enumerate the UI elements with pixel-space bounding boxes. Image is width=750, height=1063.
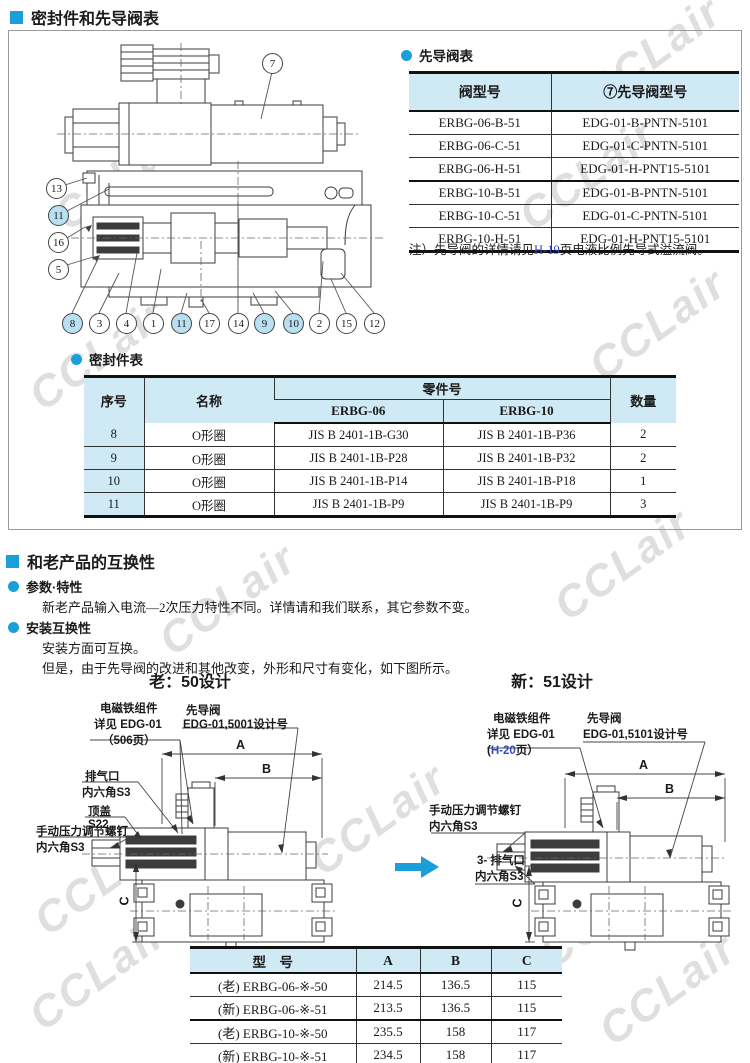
cell-qty: 3 — [610, 493, 676, 517]
cell-name: O形圈 — [144, 447, 274, 470]
table-row: ERBG-10-B-51EDG-01-B-PNTN-5101 — [409, 181, 739, 205]
cell-model: (老) ERBG-06-※-50 — [190, 973, 356, 997]
table-header-row: 型 号 A B C — [190, 948, 562, 974]
col-dim-c: C — [491, 948, 562, 974]
cell-erbg10: JIS B 2401-1B-P36 — [443, 423, 610, 447]
col-seq: 序号 — [84, 377, 144, 424]
exhaust-label-2: 内六角S3 — [475, 868, 524, 884]
cell-pilot-model: EDG-01-H-PNT15-5101 — [551, 158, 739, 182]
cell-valve-model: ERBG-06-H-51 — [409, 158, 551, 182]
top-panel: 7 13 11 16 5 8 3 4 1 11 17 14 9 10 2 15 … — [8, 30, 742, 530]
bullet-params: 参数·特性 — [8, 577, 82, 596]
cell-a: 235.5 — [356, 1020, 420, 1044]
pilot-label-2: EDG-01,5101设计号 — [583, 726, 688, 742]
cell-qty: 2 — [610, 423, 676, 447]
cell-pilot-model: EDG-01-B-PNTN-5101 — [551, 181, 739, 205]
table-row: ERBG-10-C-51EDG-01-C-PNTN-5101 — [409, 205, 739, 228]
seal-parts-table: 序号 名称 零件号 数量 ERBG-06 ERBG-10 8O形圈JIS B 2… — [84, 375, 676, 518]
callout-16: 16 — [48, 232, 69, 253]
cell-erbg06: JIS B 2401-1B-G30 — [274, 423, 443, 447]
dim-a-label: A — [236, 738, 245, 752]
screw-label-2: 内六角S3 — [36, 839, 85, 855]
cell-c: 115 — [491, 973, 562, 997]
callout-1: 1 — [143, 313, 164, 334]
solenoid-label-1: 电磁铁组件 — [493, 710, 551, 726]
table-header-row: 阀型号 ⑦先导阀型号 — [409, 73, 739, 112]
exhaust-label-2: 内六角S3 — [82, 784, 131, 800]
callout-9: 9 — [254, 313, 275, 334]
cell-model: (老) ERBG-10-※-50 — [190, 1020, 356, 1044]
new-design-title: 新：51设计 — [462, 668, 642, 692]
bullet-dot-icon — [401, 50, 412, 61]
cell-b: 136.5 — [420, 997, 491, 1021]
section-title-text: 密封件和先导阀表 — [31, 5, 159, 29]
dim-a-label: A — [639, 758, 648, 772]
section-square-icon — [10, 11, 23, 24]
callout-10: 10 — [283, 313, 304, 334]
callout-7: 7 — [262, 53, 283, 74]
solenoid-label-1: 电磁铁组件 — [100, 700, 158, 716]
solenoid-label-2: 详见 EDG-01 — [487, 726, 555, 742]
dim-b-label: B — [262, 762, 271, 776]
section-title-text: 和老产品的互换性 — [27, 549, 155, 573]
cell-a: 214.5 — [356, 973, 420, 997]
cell-seq: 10 — [84, 470, 144, 493]
col-name: 名称 — [144, 377, 274, 424]
bullet-mounting: 安装互换性 — [8, 618, 91, 637]
table-row: 11O形圈JIS B 2401-1B-P9JIS B 2401-1B-P93 — [84, 493, 676, 517]
col-part-number: 零件号 — [274, 377, 610, 400]
bullet-title-text: 安装互换性 — [26, 618, 91, 637]
cell-seq: 11 — [84, 493, 144, 517]
seal-table-title: 密封件表 — [71, 349, 143, 369]
note-text: 注）先导阀的详情请见 — [409, 243, 534, 257]
screw-label-1: 手动压力调节螺钉 — [36, 823, 128, 839]
cell-valve-model: ERBG-06-C-51 — [409, 135, 551, 158]
section-square-icon — [6, 555, 19, 568]
valve-assembly-diagram: 7 13 11 16 5 8 3 4 1 11 17 14 9 10 2 15 … — [21, 41, 411, 341]
cell-name: O形圈 — [144, 470, 274, 493]
col-pilot-model: ⑦先导阀型号 — [551, 73, 739, 112]
cell-c: 115 — [491, 997, 562, 1021]
cell-erbg10: JIS B 2401-1B-P32 — [443, 447, 610, 470]
bullet-dot-icon — [8, 622, 19, 633]
table-row: 8O形圈JIS B 2401-1B-G30JIS B 2401-1B-P362 — [84, 423, 676, 447]
cell-name: O形圈 — [144, 423, 274, 447]
callout-5: 5 — [48, 259, 69, 280]
pilot-table-title-text: 先导阀表 — [419, 45, 473, 65]
cell-erbg10: JIS B 2401-1B-P18 — [443, 470, 610, 493]
table-row: (新) ERBG-10-※-51234.5158117 — [190, 1044, 562, 1063]
cell-a: 234.5 — [356, 1044, 420, 1063]
table-header-row: 序号 名称 零件号 数量 — [84, 377, 676, 400]
cell-qty: 1 — [610, 470, 676, 493]
callout-17: 17 — [199, 313, 220, 334]
section-title-compat: 和老产品的互换性 — [6, 549, 155, 573]
table-row: 9O形圈JIS B 2401-1B-P28JIS B 2401-1B-P322 — [84, 447, 676, 470]
col-valve-model: 阀型号 — [409, 73, 551, 112]
valve-section-drawing — [21, 41, 411, 341]
pilot-valve-table: 阀型号 ⑦先导阀型号 ERBG-06-B-51EDG-01-B-PNTN-510… — [409, 71, 739, 253]
cell-seq: 9 — [84, 447, 144, 470]
bullet-dot-icon — [8, 581, 19, 592]
solenoid-label-2: 详见 EDG-01 — [94, 716, 162, 732]
solenoid-label-3: （506页） — [102, 732, 156, 748]
callout-15: 15 — [336, 313, 357, 334]
table-row: ERBG-06-B-51EDG-01-B-PNTN-5101 — [409, 111, 739, 135]
callout-14: 14 — [228, 313, 249, 334]
callout-13: 13 — [46, 178, 67, 199]
pilot-table-note: 注）先导阀的详情请见H-19页电液比例先导式溢流阀。 — [409, 239, 710, 258]
exhaust-label-1: 排气口 — [85, 768, 120, 784]
col-erbg10: ERBG-10 — [443, 400, 610, 424]
cell-valve-model: ERBG-10-B-51 — [409, 181, 551, 205]
bullet-dot-icon — [71, 354, 82, 365]
cell-name: O形圈 — [144, 493, 274, 517]
cell-pilot-model: EDG-01-B-PNTN-5101 — [551, 111, 739, 135]
callout-11: 11 — [48, 205, 69, 226]
screw-label-2: 内六角S3 — [429, 818, 478, 834]
cell-valve-model: ERBG-06-B-51 — [409, 111, 551, 135]
table-row: 10O形圈JIS B 2401-1B-P14JIS B 2401-1B-P181 — [84, 470, 676, 493]
dimension-table: 型 号 A B C (老) ERBG-06-※-50214.5136.5115 … — [190, 946, 562, 1063]
old-design-title: 老：50设计 — [100, 668, 280, 692]
callout-4: 4 — [116, 313, 137, 334]
cell-qty: 2 — [610, 447, 676, 470]
table-row: ERBG-06-H-51EDG-01-H-PNT15-5101 — [409, 158, 739, 182]
col-dim-b: B — [420, 948, 491, 974]
callout-12: 12 — [364, 313, 385, 334]
callout-3: 3 — [89, 313, 110, 334]
new-design-diagram: 电磁铁组件 详见 EDG-01 (H-20页） 先导阀 EDG-01,5101设… — [425, 690, 750, 963]
table-row: (老) ERBG-06-※-50214.5136.5115 — [190, 973, 562, 997]
dim-c-label: C — [118, 896, 132, 905]
callout-8: 8 — [62, 313, 83, 334]
note-text: 页电液比例先导式溢流阀。 — [560, 243, 710, 257]
cell-b: 158 — [420, 1020, 491, 1044]
cell-erbg06: JIS B 2401-1B-P14 — [274, 470, 443, 493]
callout-11b: 11 — [171, 313, 192, 334]
mounting-text-1: 安装方面可互换。 — [42, 638, 146, 657]
cell-c: 117 — [491, 1044, 562, 1063]
table-row: (新) ERBG-06-※-51213.5136.5115 — [190, 997, 562, 1021]
dim-c-label: C — [511, 898, 525, 907]
label-text: 页） — [516, 745, 539, 757]
col-erbg06: ERBG-06 — [274, 400, 443, 424]
cell-pilot-model: EDG-01-C-PNTN-5101 — [551, 135, 739, 158]
exhaust-label-1: 3- 排气口 — [477, 852, 525, 868]
screw-label-1: 手动压力调节螺钉 — [429, 802, 521, 818]
cell-b: 136.5 — [420, 973, 491, 997]
pilot-label-2: EDG-01,5001设计号 — [183, 716, 288, 732]
callout-2: 2 — [309, 313, 330, 334]
cell-erbg06: JIS B 2401-1B-P28 — [274, 447, 443, 470]
dim-b-label: B — [665, 782, 674, 796]
table-row: (老) ERBG-10-※-50235.5158117 — [190, 1020, 562, 1044]
cell-erbg06: JIS B 2401-1B-P9 — [274, 493, 443, 517]
pilot-label-1: 先导阀 — [587, 710, 622, 726]
table-row: ERBG-06-C-51EDG-01-C-PNTN-5101 — [409, 135, 739, 158]
cell-model: (新) ERBG-10-※-51 — [190, 1044, 356, 1063]
section-title-seals-pilot: 密封件和先导阀表 — [10, 5, 159, 29]
cell-b: 158 — [420, 1044, 491, 1063]
col-qty: 数量 — [610, 377, 676, 424]
seal-table-title-text: 密封件表 — [89, 349, 143, 369]
solenoid-label-3: (H-20页） — [487, 742, 539, 758]
cell-erbg10: JIS B 2401-1B-P9 — [443, 493, 610, 517]
cell-pilot-model: EDG-01-C-PNTN-5101 — [551, 205, 739, 228]
document-page: CCLair CCLair CCLair CCLair CCLair CCLai… — [0, 0, 750, 1063]
col-model: 型 号 — [190, 948, 356, 974]
page-ref-link[interactable]: H-20 — [491, 745, 516, 757]
old-design-diagram: 电磁铁组件 详见 EDG-01 （506页） 先导阀 EDG-01,5001设计… — [30, 690, 380, 958]
bullet-title-text: 参数·特性 — [26, 577, 82, 596]
cap-label-1: 顶盖 — [88, 803, 111, 819]
page-ref-link[interactable]: H-19 — [534, 243, 560, 257]
col-dim-a: A — [356, 948, 420, 974]
cell-valve-model: ERBG-10-C-51 — [409, 205, 551, 228]
cell-model: (新) ERBG-06-※-51 — [190, 997, 356, 1021]
cell-seq: 8 — [84, 423, 144, 447]
cell-c: 117 — [491, 1020, 562, 1044]
params-text: 新老产品输入电流—2次压力特性不同。详情请和我们联系，其它参数不变。 — [42, 597, 478, 616]
cell-a: 213.5 — [356, 997, 420, 1021]
pilot-table-title: 先导阀表 — [401, 45, 473, 65]
